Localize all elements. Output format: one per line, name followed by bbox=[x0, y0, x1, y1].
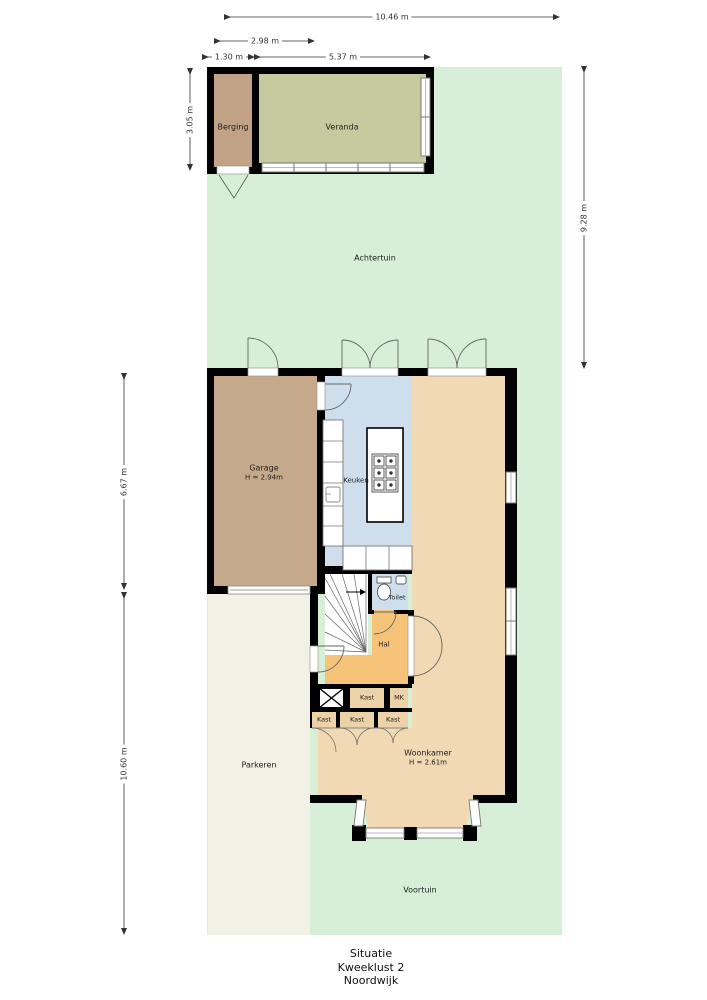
garage-door-icon bbox=[228, 586, 310, 594]
hal-label: Hal bbox=[378, 641, 390, 650]
dimension-parkeren-depth: 10.60 m bbox=[120, 744, 129, 783]
window-right-2-icon bbox=[506, 588, 516, 655]
dimension-berging-width: 1.30 m bbox=[212, 53, 246, 62]
kast-label-2: Kast bbox=[317, 716, 331, 725]
woonkamer-label: Woonkamer bbox=[404, 749, 452, 758]
title-line-address: Kweeklust 2 bbox=[291, 961, 451, 975]
dimension-garage-depth: 6.67 m bbox=[120, 465, 129, 499]
woonkamer-height-label: H = 2.61m bbox=[409, 759, 447, 768]
kitchen-sink-icon bbox=[326, 487, 340, 502]
drawing-title-block: Situatie Kweeklust 2 Noordwijk bbox=[291, 947, 451, 988]
veranda-side-window-icon bbox=[421, 78, 430, 156]
hal-area-2 bbox=[325, 655, 372, 684]
floorplan-drawing bbox=[0, 0, 707, 1000]
veranda-label: Veranda bbox=[325, 123, 358, 132]
title-line-situatie: Situatie bbox=[291, 947, 451, 961]
mk-label: MK bbox=[394, 694, 404, 703]
toilet-tank-icon bbox=[377, 577, 391, 583]
veranda-windows-icon bbox=[262, 163, 424, 172]
voortuin-label: Voortuin bbox=[403, 886, 436, 895]
veranda-area bbox=[259, 74, 426, 163]
toilet-sink-icon bbox=[396, 576, 406, 584]
garage-label: Garage bbox=[249, 464, 278, 473]
kast-label-1: Kast bbox=[360, 694, 374, 703]
kast-label-4: Kast bbox=[386, 716, 400, 725]
berging-area bbox=[214, 74, 252, 167]
dimension-achtertuin-depth: 9.28 m bbox=[580, 201, 589, 235]
kitchen-counter-icon bbox=[323, 420, 343, 546]
kast-label-3: Kast bbox=[350, 716, 364, 725]
window-right-1-icon bbox=[506, 472, 516, 503]
berging-label: Berging bbox=[217, 123, 248, 132]
achtertuin-label: Achtertuin bbox=[354, 254, 396, 263]
floorplan-canvas: 10.46 m 2.98 m 1.30 m 5.37 m 3.05 m 6.67… bbox=[0, 0, 707, 1000]
garage-height-label: H = 2.94m bbox=[245, 474, 283, 483]
dimension-veranda-depth: 3.05 m bbox=[186, 103, 195, 137]
parkeren-label: Parkeren bbox=[241, 761, 276, 770]
dimension-veranda-width: 5.37 m bbox=[326, 53, 360, 62]
keuken-label: Keuken bbox=[343, 477, 369, 486]
kitchen-island-icon bbox=[367, 428, 403, 522]
title-line-city: Noordwijk bbox=[291, 974, 451, 988]
kitchen-counter-bottom-icon bbox=[343, 546, 412, 570]
woonkamer-bay-area bbox=[362, 795, 473, 831]
dimension-berging-span: 2.98 m bbox=[248, 37, 282, 46]
toilet-label: Toilet bbox=[388, 594, 405, 603]
dimension-total-width: 10.46 m bbox=[372, 13, 411, 22]
